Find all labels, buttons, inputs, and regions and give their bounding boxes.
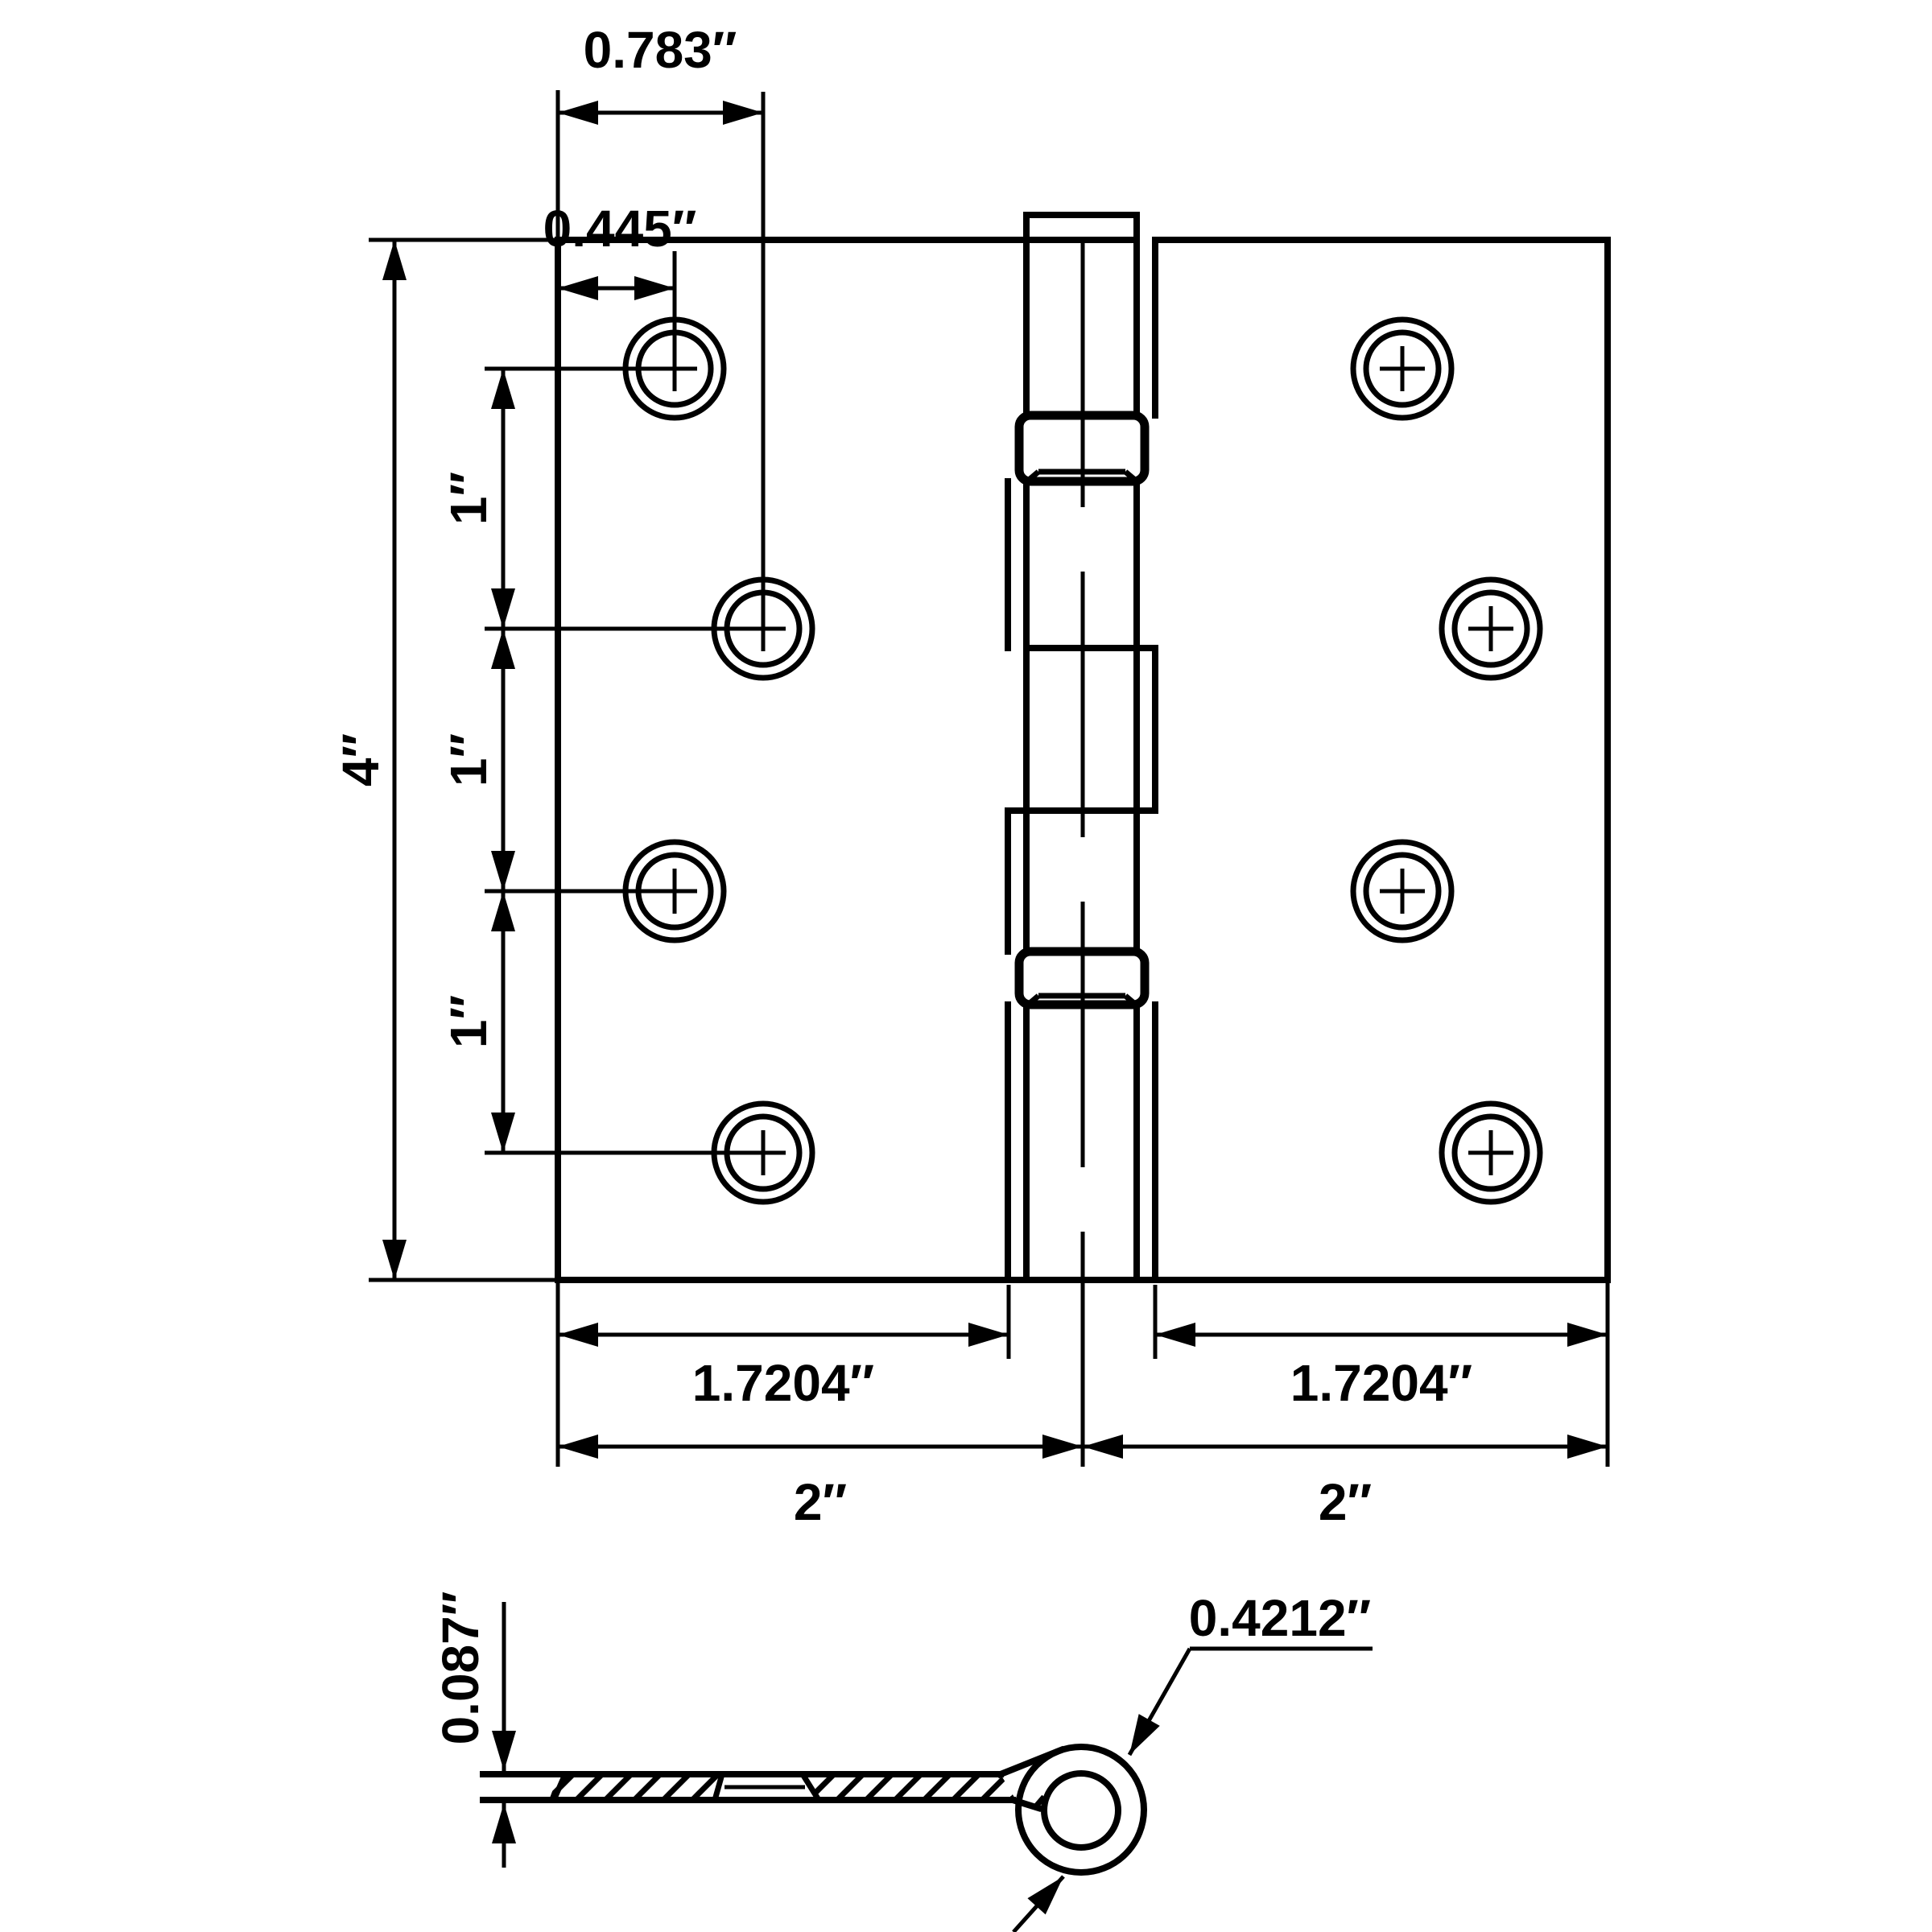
dim-label-leaf-width-left: 1.7204″ (692, 1354, 874, 1412)
hinge-technical-drawing: 0.783″ 0.445″ 4″ 1″ 1″ 1″ 1.72 (0, 0, 1932, 1932)
screw-hole-right-3 (1353, 842, 1451, 940)
dim-label-hole-offset-outer: 0.783″ (584, 21, 737, 79)
dim-label-height: 4″ (332, 733, 390, 786)
dim-label-thickness: 0.087″ (431, 1591, 489, 1745)
dim-hole-spacing: 1″ 1″ 1″ (440, 369, 503, 1153)
dim-label-spacing-2: 1″ (440, 733, 497, 786)
dim-label-spacing-1: 1″ (440, 472, 497, 525)
screw-hole-right-1 (1353, 320, 1451, 418)
dim-label-half-width-left: 2″ (794, 1473, 847, 1531)
screw-hole-right-2 (1442, 580, 1540, 678)
hatch-area-right (803, 1774, 1016, 1800)
dim-label-knuckle-diameter: 0.4212″ (1189, 1589, 1371, 1647)
dim-label-hole-offset-inner: 0.445″ (543, 200, 697, 258)
page-background (0, 0, 1932, 1932)
hatch-area-left (549, 1774, 722, 1800)
dim-label-half-width-right: 2″ (1319, 1473, 1372, 1531)
dim-label-leaf-width-right: 1.7204″ (1290, 1354, 1472, 1412)
dim-label-spacing-3: 1″ (440, 995, 497, 1048)
drawing-canvas: 0.783″ 0.445″ 4″ 1″ 1″ 1″ 1.72 (0, 0, 1932, 1932)
screw-hole-right-4 (1442, 1104, 1540, 1202)
